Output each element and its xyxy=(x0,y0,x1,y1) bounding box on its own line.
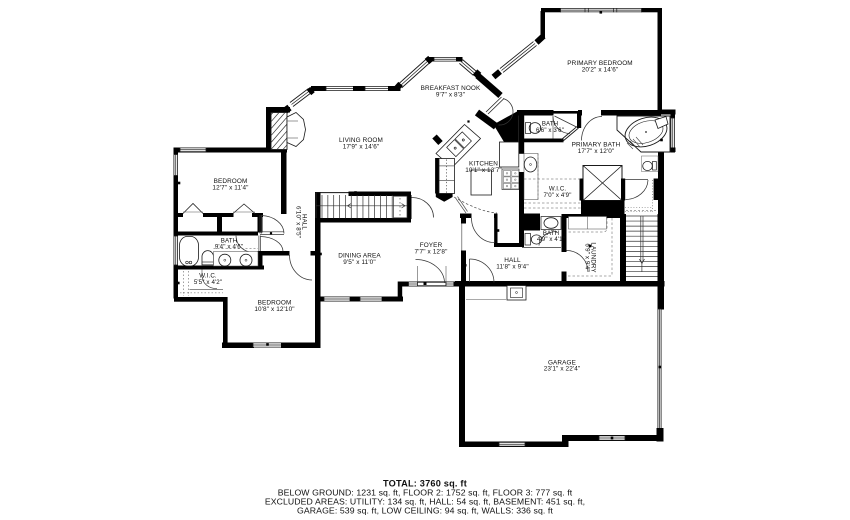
svg-text:6'6" x 3'6": 6'6" x 3'6" xyxy=(536,127,564,134)
svg-text:6'10" x 8'5": 6'10" x 8'5" xyxy=(294,206,301,238)
svg-text:GARAGE: 539 sq. ft, LOW CEILIN: GARAGE: 539 sq. ft, LOW CEILING: 94 sq. … xyxy=(297,505,553,515)
svg-text:9'5" x 11'0": 9'5" x 11'0" xyxy=(343,259,375,266)
svg-text:12'7" x 11'4": 12'7" x 11'4" xyxy=(212,184,248,191)
svg-text:5'5" x 4'2": 5'5" x 4'2" xyxy=(194,279,222,286)
svg-text:11'8" x 9'4": 11'8" x 9'4" xyxy=(496,263,528,270)
svg-text:9'4" x 4'6": 9'4" x 4'6" xyxy=(215,244,243,251)
svg-text:9'7" x 8'3": 9'7" x 8'3" xyxy=(436,91,465,98)
svg-text:4'9" x 4'1": 4'9" x 4'1" xyxy=(537,236,565,243)
svg-text:23'1" x 22'4": 23'1" x 22'4" xyxy=(544,366,581,373)
svg-text:7'0" x 4'9": 7'0" x 4'9" xyxy=(544,192,572,199)
svg-text:6'9" x 9'4": 6'9" x 9'4" xyxy=(584,243,591,271)
svg-text:10'1" x 13'7": 10'1" x 13'7" xyxy=(465,167,502,174)
svg-text:17'9" x 14'6": 17'9" x 14'6" xyxy=(343,143,380,150)
svg-text:10'8" x 12'10": 10'8" x 12'10" xyxy=(254,306,294,313)
svg-text:7'7" x 12'8": 7'7" x 12'8" xyxy=(415,248,448,255)
svg-text:20'2" x 14'6": 20'2" x 14'6" xyxy=(582,66,619,73)
svg-text:17'7" x 12'0": 17'7" x 12'0" xyxy=(578,148,615,155)
